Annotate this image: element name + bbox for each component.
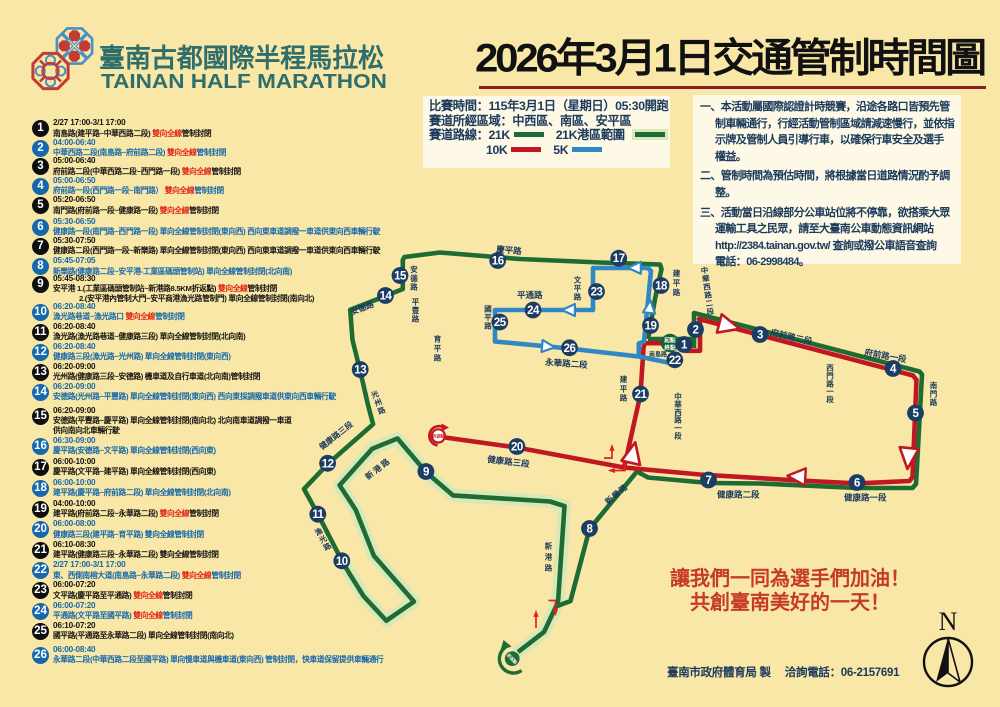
svg-text:建平路: 建平路 <box>619 374 628 403</box>
svg-text:15: 15 <box>394 271 407 283</box>
svg-text:建平路: 建平路 <box>672 268 681 297</box>
svg-text:國平路: 國平路 <box>484 305 492 331</box>
svg-text:7: 7 <box>706 475 712 487</box>
svg-text:文平路: 文平路 <box>574 275 582 302</box>
svg-text:21: 21 <box>635 389 648 401</box>
svg-text:6: 6 <box>854 478 860 490</box>
svg-text:11: 11 <box>312 509 324 521</box>
svg-text:中華西路一段: 中華西路一段 <box>674 391 682 441</box>
svg-text:2: 2 <box>693 325 699 337</box>
svg-text:10: 10 <box>336 556 348 568</box>
svg-text:中華西路二段: 中華西路二段 <box>700 264 715 316</box>
svg-text:13: 13 <box>354 365 366 377</box>
svg-text:起點: 起點 <box>663 336 676 344</box>
svg-text:17: 17 <box>613 253 625 265</box>
svg-text:19: 19 <box>645 321 657 333</box>
svg-text:健康路三段: 健康路三段 <box>487 454 531 469</box>
svg-text:26: 26 <box>564 343 576 355</box>
svg-text:安德路: 安德路 <box>349 299 376 317</box>
svg-text:南門路: 南門路 <box>930 380 938 407</box>
svg-text:健康路一段: 健康路一段 <box>844 493 887 503</box>
svg-text:18: 18 <box>655 281 668 293</box>
svg-text:南島路: 南島路 <box>649 351 668 359</box>
svg-text:22: 22 <box>669 355 681 367</box>
svg-text:23: 23 <box>591 287 603 299</box>
svg-text:平豐路: 平豐路 <box>412 298 420 324</box>
svg-text:12: 12 <box>322 458 334 470</box>
svg-text:3: 3 <box>757 330 763 342</box>
svg-text:西門路一段: 西門路一段 <box>826 364 834 405</box>
svg-text:育平路: 育平路 <box>434 334 442 363</box>
svg-text:16: 16 <box>492 256 504 268</box>
svg-text:健康路二段: 健康路二段 <box>717 490 760 500</box>
svg-text:折返點: 折返點 <box>432 433 444 439</box>
svg-text:N: N <box>939 607 958 636</box>
svg-text:安德路: 安德路 <box>410 264 418 292</box>
svg-text:永華路二段: 永華路二段 <box>544 357 589 370</box>
svg-text:25: 25 <box>494 317 507 329</box>
svg-text:新樂路: 新樂路 <box>603 482 630 507</box>
svg-text:終點: 終點 <box>664 343 676 351</box>
svg-text:20: 20 <box>511 442 523 454</box>
svg-text:14: 14 <box>380 291 393 303</box>
svg-text:9: 9 <box>423 467 429 479</box>
svg-text:平通路: 平通路 <box>517 290 543 300</box>
svg-text:新港路: 新港路 <box>545 541 553 573</box>
svg-text:24: 24 <box>527 305 540 317</box>
